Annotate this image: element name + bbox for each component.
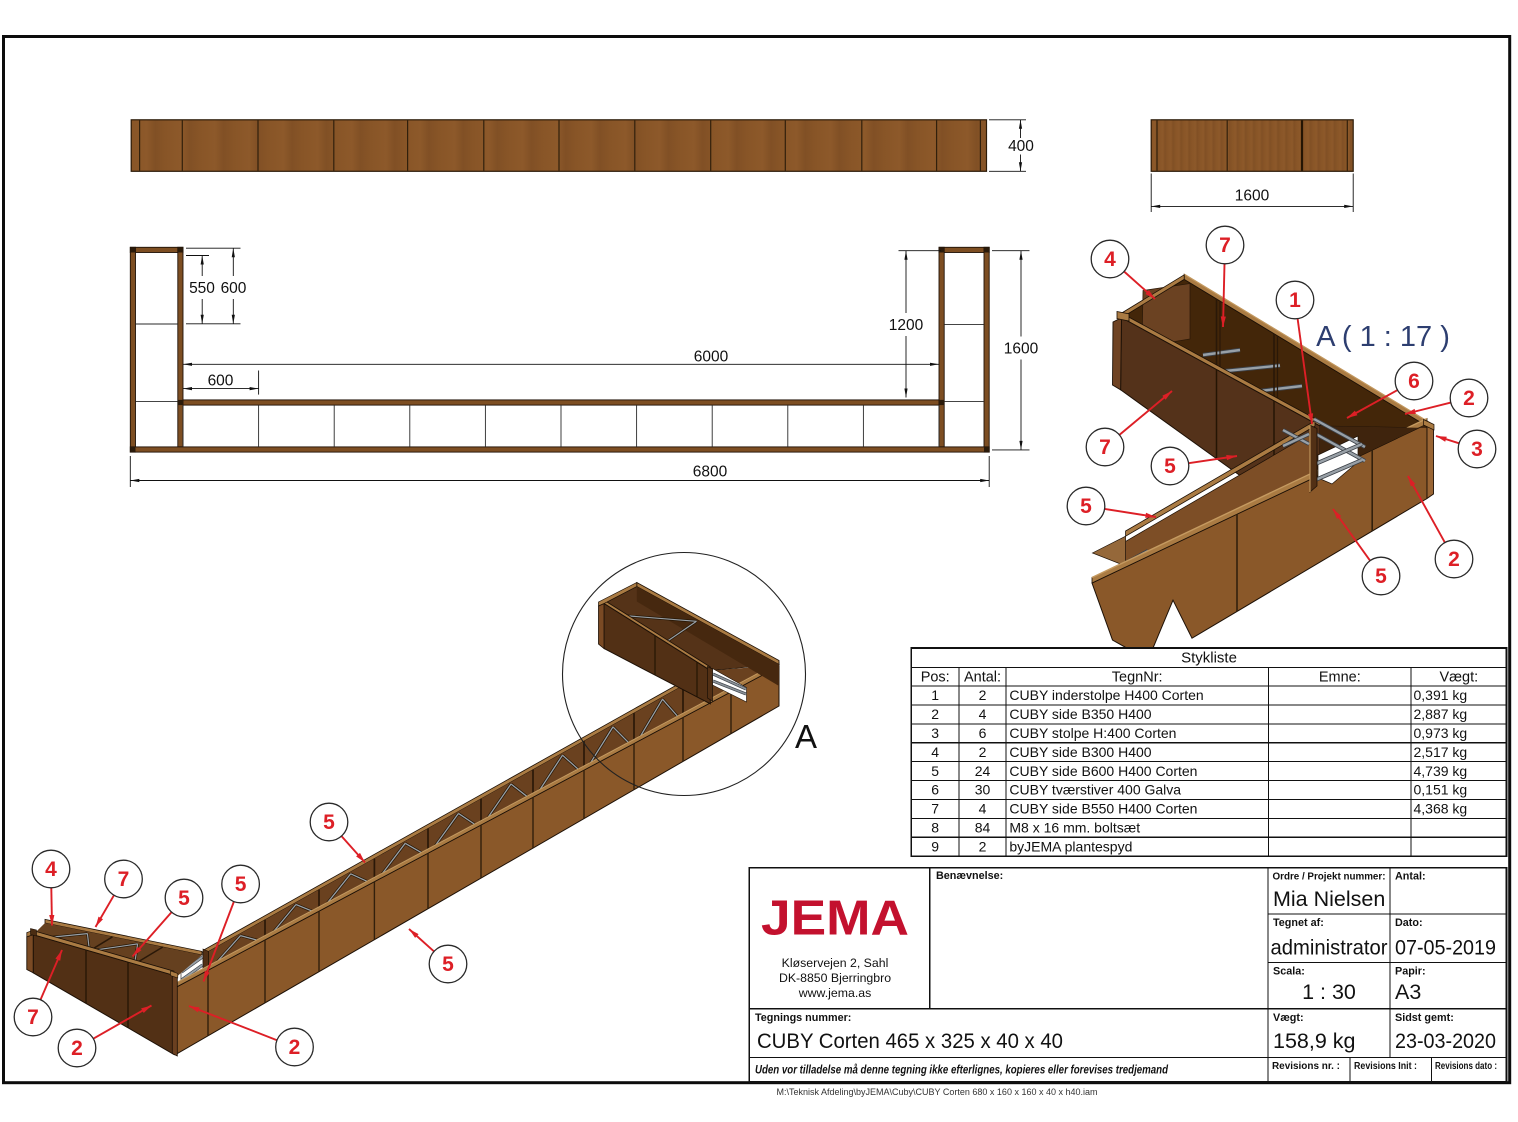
svg-text:7: 7 bbox=[1219, 234, 1231, 257]
svg-text:1200: 1200 bbox=[889, 317, 924, 334]
svg-text:CUBY tværstiver 400 Galva: CUBY tværstiver 400 Galva bbox=[1009, 782, 1181, 798]
svg-text:0,973 kg: 0,973 kg bbox=[1414, 725, 1468, 741]
svg-text:8: 8 bbox=[931, 820, 939, 836]
svg-text:6: 6 bbox=[1408, 370, 1420, 393]
svg-text:CUBY stolpe H:400 Corten: CUBY stolpe H:400 Corten bbox=[1009, 725, 1176, 741]
svg-text:2: 2 bbox=[71, 1037, 83, 1060]
svg-text:2: 2 bbox=[931, 706, 939, 722]
svg-text:7: 7 bbox=[1099, 436, 1111, 459]
svg-text:6: 6 bbox=[931, 782, 939, 798]
svg-text:2: 2 bbox=[979, 687, 987, 703]
svg-text:Dato:: Dato: bbox=[1395, 917, 1423, 929]
svg-text:5: 5 bbox=[1375, 565, 1387, 588]
svg-text:CUBY side B350 H400: CUBY side B350 H400 bbox=[1009, 706, 1151, 722]
svg-text:07-05-2019: 07-05-2019 bbox=[1395, 936, 1496, 960]
svg-text:600: 600 bbox=[221, 280, 247, 297]
svg-text:6: 6 bbox=[979, 725, 987, 741]
svg-text:5: 5 bbox=[235, 873, 247, 896]
svg-text:158,9 kg: 158,9 kg bbox=[1273, 1029, 1355, 1053]
svg-text:Vægt:: Vægt: bbox=[1439, 670, 1478, 686]
svg-text:byJEMA plantespyd: byJEMA plantespyd bbox=[1009, 838, 1132, 854]
svg-text:Mia Nielsen: Mia Nielsen bbox=[1273, 887, 1385, 911]
svg-text:23-03-2020: 23-03-2020 bbox=[1395, 1029, 1496, 1053]
svg-text:CUBY side B550 H400 Corten: CUBY side B550 H400 Corten bbox=[1009, 801, 1197, 817]
svg-text:Pos:: Pos: bbox=[921, 670, 950, 686]
svg-text:A3: A3 bbox=[1395, 980, 1421, 1004]
svg-text:4: 4 bbox=[931, 744, 939, 760]
svg-text:Antal:: Antal: bbox=[964, 670, 1001, 686]
svg-text:2: 2 bbox=[289, 1036, 301, 1059]
svg-text:Antal:: Antal: bbox=[1395, 871, 1426, 883]
svg-text:5: 5 bbox=[323, 811, 335, 834]
svg-text:DK-8850 Bjerringbro: DK-8850 Bjerringbro bbox=[779, 971, 891, 985]
svg-text:1: 1 bbox=[931, 687, 939, 703]
svg-text:Vægt:: Vægt: bbox=[1273, 1012, 1304, 1024]
svg-text:Revisions dato :: Revisions dato : bbox=[1435, 1061, 1497, 1072]
svg-text:3: 3 bbox=[1471, 438, 1483, 461]
svg-text:5: 5 bbox=[442, 953, 454, 976]
svg-text:Tegnet af:: Tegnet af: bbox=[1273, 917, 1324, 929]
svg-text:Kløservejen 2, Sahl: Kløservejen 2, Sahl bbox=[782, 956, 889, 970]
svg-text:1 : 30: 1 : 30 bbox=[1302, 980, 1356, 1004]
svg-text:400: 400 bbox=[1008, 138, 1034, 155]
svg-text:2,517 kg: 2,517 kg bbox=[1414, 744, 1468, 760]
svg-text:CUBY side B600 H400 Corten: CUBY side B600 H400 Corten bbox=[1009, 763, 1197, 779]
svg-text:550: 550 bbox=[189, 280, 215, 297]
svg-text:4,739 kg: 4,739 kg bbox=[1414, 763, 1468, 779]
svg-text:24: 24 bbox=[975, 763, 991, 779]
svg-text:9: 9 bbox=[931, 838, 939, 854]
svg-text:CUBY side B300 H400: CUBY side B300 H400 bbox=[1009, 744, 1151, 760]
svg-text:Uden vor tilladelse må denne t: Uden vor tilladelse må denne tegning ikk… bbox=[755, 1063, 1168, 1077]
svg-text:600: 600 bbox=[208, 373, 234, 390]
svg-text:7: 7 bbox=[931, 801, 939, 817]
svg-text:30: 30 bbox=[975, 782, 991, 798]
svg-text:M:\Teknisk Afdeling\byJEMA\Cub: M:\Teknisk Afdeling\byJEMA\Cuby\CUBY Cor… bbox=[777, 1087, 1098, 1097]
svg-text:7: 7 bbox=[27, 1006, 39, 1029]
svg-text:A: A bbox=[795, 718, 817, 755]
svg-text:A ( 1 : 17 ): A ( 1 : 17 ) bbox=[1316, 321, 1450, 353]
svg-text:1600: 1600 bbox=[1235, 188, 1270, 205]
svg-text:4: 4 bbox=[1104, 248, 1116, 271]
svg-text:administrator: administrator bbox=[1271, 936, 1388, 960]
svg-text:CUBY inderstolpe H400 Corten: CUBY inderstolpe H400 Corten bbox=[1009, 687, 1203, 703]
svg-text:6000: 6000 bbox=[694, 348, 729, 365]
svg-text:5: 5 bbox=[931, 763, 939, 779]
svg-text:www.jema.as: www.jema.as bbox=[798, 986, 871, 1000]
svg-text:4: 4 bbox=[45, 858, 57, 881]
svg-text:6800: 6800 bbox=[693, 463, 728, 480]
svg-text:3: 3 bbox=[931, 725, 939, 741]
svg-text:5: 5 bbox=[178, 887, 190, 910]
svg-text:Ordre / Projekt nummer:: Ordre / Projekt nummer: bbox=[1273, 872, 1386, 883]
svg-text:2,887 kg: 2,887 kg bbox=[1414, 706, 1468, 722]
svg-text:Scala:: Scala: bbox=[1273, 966, 1305, 978]
svg-text:2: 2 bbox=[979, 744, 987, 760]
svg-text:Revisions nr. :: Revisions nr. : bbox=[1272, 1061, 1340, 1072]
svg-text:2: 2 bbox=[1448, 548, 1460, 571]
svg-text:1: 1 bbox=[1289, 289, 1301, 312]
svg-text:Benævnelse:: Benævnelse: bbox=[936, 870, 1003, 882]
svg-text:0,391 kg: 0,391 kg bbox=[1414, 687, 1468, 703]
svg-text:Sidst gemt:: Sidst gemt: bbox=[1395, 1012, 1454, 1024]
svg-text:2: 2 bbox=[1463, 387, 1475, 410]
svg-text:2: 2 bbox=[979, 838, 987, 854]
svg-text:4: 4 bbox=[979, 706, 987, 722]
svg-text:4,368 kg: 4,368 kg bbox=[1414, 801, 1468, 817]
svg-text:84: 84 bbox=[975, 820, 991, 836]
svg-text:Revisions Init :: Revisions Init : bbox=[1354, 1061, 1417, 1072]
svg-text:Emne:: Emne: bbox=[1319, 670, 1361, 686]
svg-text:CUBY Corten 465 x 325 x 40 x 4: CUBY Corten 465 x 325 x 40 x 40 bbox=[757, 1030, 1063, 1053]
svg-text:Tegnings nummer:: Tegnings nummer: bbox=[755, 1012, 851, 1024]
svg-text:M8 x 16 mm. boltsæt: M8 x 16 mm. boltsæt bbox=[1009, 820, 1140, 836]
svg-text:JEMA: JEMA bbox=[761, 892, 909, 946]
svg-text:TegnNr:: TegnNr: bbox=[1112, 670, 1163, 686]
svg-text:5: 5 bbox=[1080, 495, 1092, 518]
svg-text:0,151 kg: 0,151 kg bbox=[1414, 782, 1468, 798]
svg-text:4: 4 bbox=[979, 801, 987, 817]
svg-text:1600: 1600 bbox=[1004, 341, 1039, 358]
svg-text:5: 5 bbox=[1164, 455, 1176, 478]
svg-text:7: 7 bbox=[118, 868, 130, 891]
svg-text:Papir:: Papir: bbox=[1395, 966, 1426, 978]
svg-text:Stykliste: Stykliste bbox=[1181, 650, 1237, 667]
